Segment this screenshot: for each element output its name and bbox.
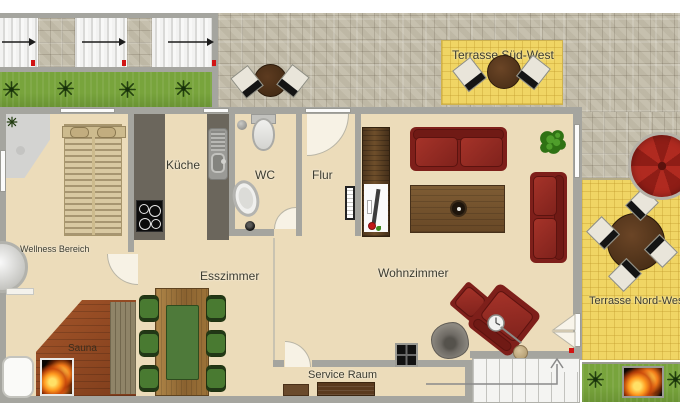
plant-icon <box>666 370 680 389</box>
red-marker <box>122 60 126 66</box>
window <box>0 150 6 192</box>
sofa-right-vertical <box>530 172 567 263</box>
red-marker <box>569 348 574 353</box>
plant-icon <box>118 80 137 99</box>
red-accent <box>368 222 376 230</box>
wohnzimmer-label: Wohnzimmer <box>378 266 448 280</box>
sink-drainboard <box>211 131 225 151</box>
wall-service-top-left <box>273 360 284 367</box>
esszimmer-label: Esszimmer <box>200 269 259 283</box>
dining-chair <box>206 330 226 357</box>
direction-arrow-icon <box>2 36 36 48</box>
bowl-dot <box>457 207 461 211</box>
media-panel <box>364 184 388 232</box>
wc-label: WC <box>255 168 275 182</box>
plant-icon <box>586 370 605 389</box>
dining-table <box>155 288 209 396</box>
service-label: Service Raum <box>308 369 377 381</box>
dining-chair <box>139 295 159 322</box>
lounger-pillow <box>70 127 89 138</box>
dining-chair <box>139 365 159 392</box>
double-door-terrace <box>550 312 578 350</box>
toilet-bowl <box>252 118 275 151</box>
wellness-lounger <box>64 124 122 236</box>
burner <box>139 204 149 214</box>
wall-dining-living-divider <box>273 238 275 362</box>
fireplace-window <box>395 343 418 367</box>
wellness-label: Wellness Bereich <box>20 244 89 254</box>
shower-drain <box>16 146 25 155</box>
plant-icon <box>174 79 193 98</box>
plant-icon <box>56 79 75 98</box>
bean-bag <box>431 322 469 359</box>
bottom-wall <box>0 396 472 403</box>
direction-arrow-icon <box>168 36 214 48</box>
service-shelf-long <box>317 382 375 396</box>
sofa-two-seat <box>410 127 507 171</box>
faucet <box>221 159 226 164</box>
fire-pit <box>622 366 664 398</box>
burner <box>151 219 161 229</box>
window <box>574 124 580 178</box>
tv-slab <box>372 189 381 225</box>
red-marker <box>31 60 35 66</box>
sauna-bench <box>110 302 136 394</box>
window <box>60 108 115 113</box>
bathtub <box>2 356 34 398</box>
sofa-cushion <box>415 137 458 167</box>
red-marker <box>212 60 216 66</box>
dining-chair <box>206 295 226 322</box>
wc-sink-basin <box>236 186 255 211</box>
table-runner <box>166 305 199 380</box>
kitchen-sink-unit <box>208 128 228 180</box>
sofa-cushion <box>460 137 503 167</box>
sauna-label: Sauna <box>68 343 97 354</box>
driveway-pillar <box>38 18 75 67</box>
bistro-table <box>487 55 521 89</box>
dining-chair <box>206 365 226 392</box>
burner <box>139 218 151 230</box>
driveway-pillar <box>127 18 152 67</box>
radiator <box>345 186 355 220</box>
wall-wc-bottom-nub <box>296 229 302 236</box>
coffee-table <box>410 185 505 233</box>
table-bowl <box>450 200 467 217</box>
wellness-shelf <box>6 288 34 295</box>
green-sprig <box>376 226 381 231</box>
lounger-pillow <box>97 127 116 138</box>
sideboard <box>362 127 390 237</box>
flur-label: Flur <box>312 168 333 182</box>
terrasse-nord-west-label: Terrasse Nord-West <box>589 295 680 307</box>
wall-kitchen-wc <box>229 107 235 236</box>
dining-chair <box>139 330 159 357</box>
window <box>203 108 229 113</box>
wall-knob <box>237 120 247 130</box>
service-shelf-small <box>283 384 309 396</box>
kueche-label: Küche <box>166 158 200 172</box>
wall-wc-flur <box>296 107 302 236</box>
floor-drain <box>245 221 255 231</box>
plant-icon <box>6 116 18 128</box>
sofa-cushion <box>533 218 557 259</box>
floor-plan-canvas: Terrasse Süd-West Wellness Be <box>0 0 680 408</box>
plant-icon <box>2 80 21 99</box>
plant-icon <box>537 126 568 159</box>
sauna-heater <box>40 358 74 396</box>
stairs-up-arrow-icon <box>424 356 566 390</box>
sofa-cushion <box>533 176 557 216</box>
lounger-divider <box>92 137 95 235</box>
burner <box>149 205 161 217</box>
entrance-threshold <box>305 108 351 113</box>
remote <box>367 200 372 214</box>
wall-flur-living <box>355 107 361 236</box>
stove <box>136 200 163 232</box>
direction-arrow-icon <box>82 36 126 48</box>
